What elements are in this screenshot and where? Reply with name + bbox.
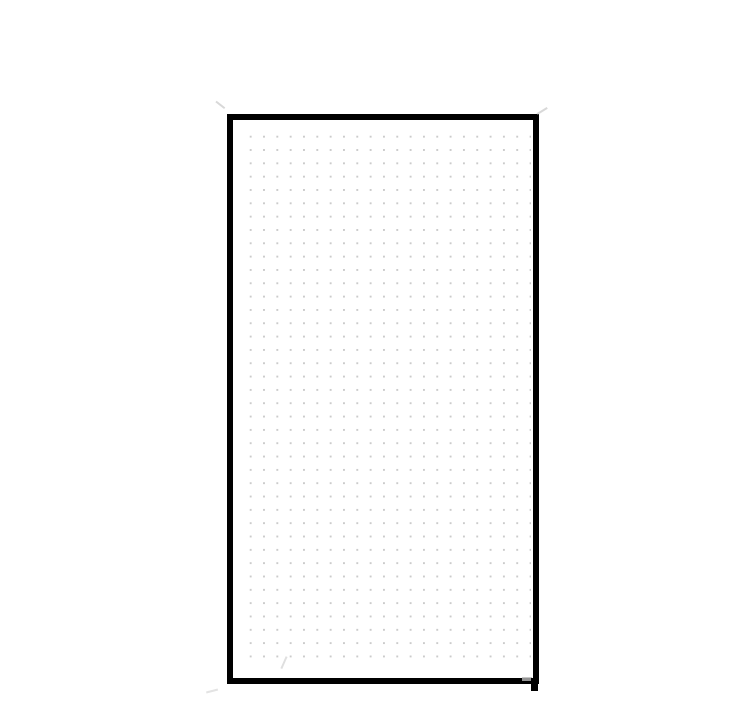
sketch-overshoot-bottom-right-vertical: [531, 678, 538, 691]
dot-grid-fill: [244, 130, 531, 668]
sketch-tick-top-right: [537, 107, 548, 115]
drawing-canvas[interactable]: [0, 0, 735, 718]
sketch-tick-bottom-left: [206, 688, 218, 693]
sketch-tick-top-left: [216, 101, 226, 109]
rectangle-shape[interactable]: [227, 114, 539, 684]
